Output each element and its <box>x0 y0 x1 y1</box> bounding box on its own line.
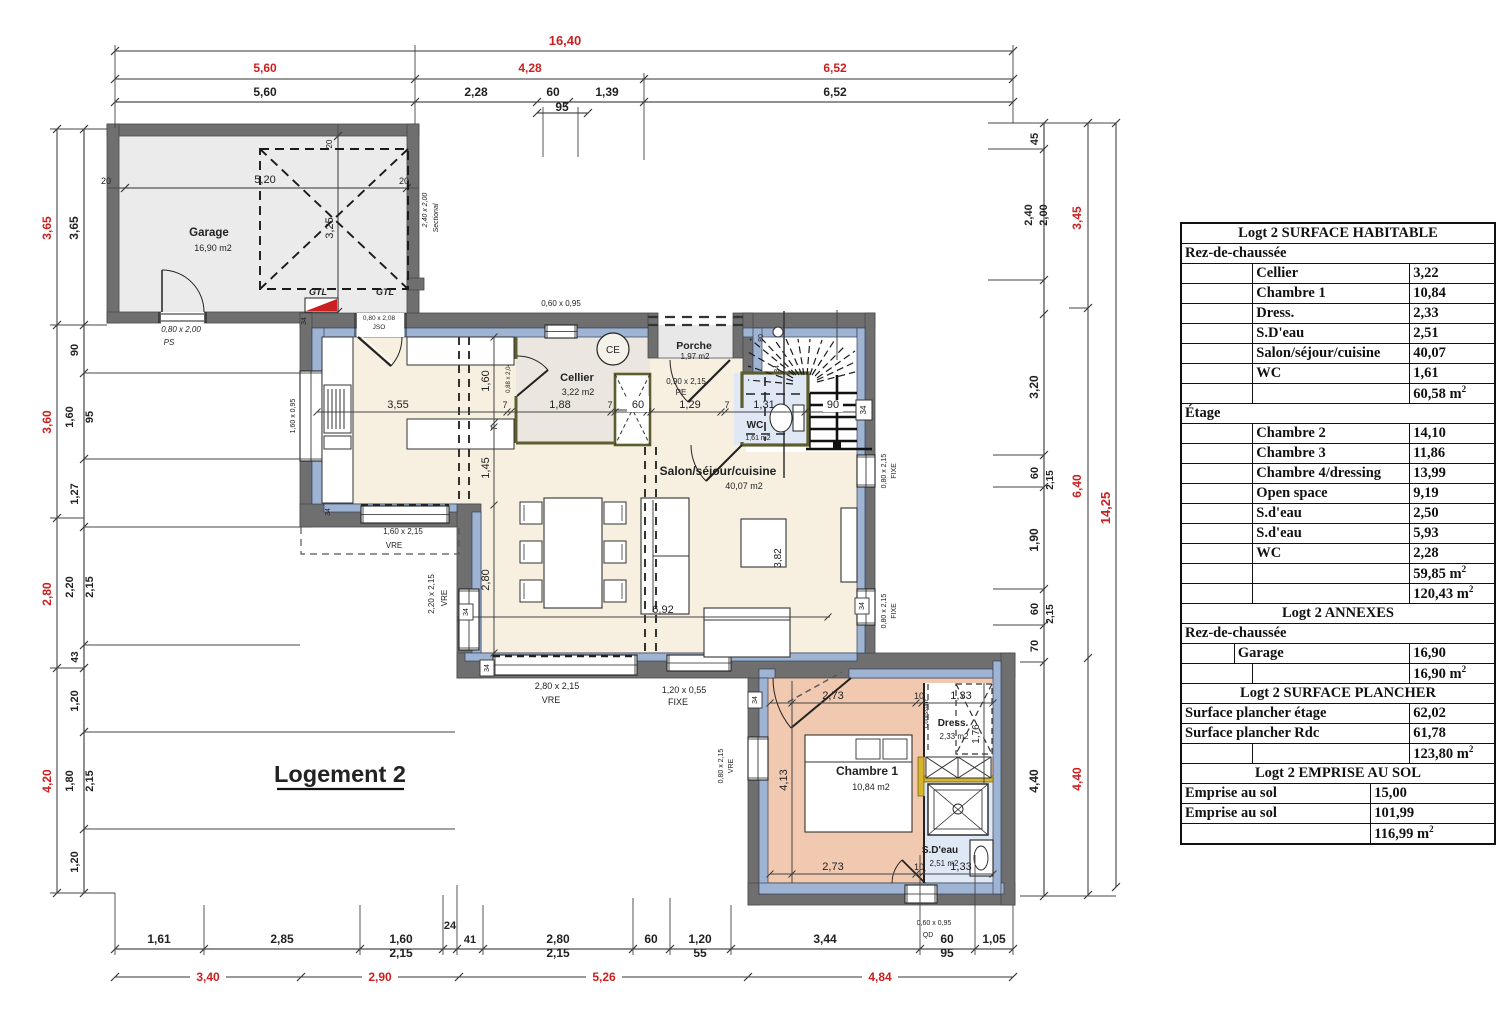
svg-text:1,88: 1,88 <box>549 399 570 411</box>
svg-text:0,90 x 2,15: 0,90 x 2,15 <box>666 377 706 386</box>
svg-text:3,65: 3,65 <box>67 216 81 240</box>
svg-text:16,40: 16,40 <box>549 33 582 48</box>
svg-text:1,60 x 2,15: 1,60 x 2,15 <box>383 527 423 536</box>
svg-text:40,07 m2: 40,07 m2 <box>725 481 763 491</box>
svg-text:20: 20 <box>325 139 334 148</box>
svg-text:5,60: 5,60 <box>253 85 277 99</box>
svg-text:80: 80 <box>758 334 765 342</box>
svg-text:7: 7 <box>490 425 499 430</box>
svg-text:1,33: 1,33 <box>950 690 971 702</box>
svg-text:2,80 x 2,15: 2,80 x 2,15 <box>535 681 580 691</box>
svg-text:6,92: 6,92 <box>652 604 673 616</box>
svg-text:2,90: 2,90 <box>368 970 392 984</box>
svg-text:3,40: 3,40 <box>196 970 220 984</box>
svg-text:2,00: 2,00 <box>1038 204 1050 225</box>
svg-text:0,60 x 0,95: 0,60 x 0,95 <box>541 299 581 308</box>
svg-text:7: 7 <box>724 400 729 410</box>
svg-text:34: 34 <box>859 405 868 414</box>
svg-text:90: 90 <box>827 399 839 411</box>
svg-text:FIXE: FIXE <box>891 463 898 479</box>
svg-text:CE: CE <box>606 345 620 356</box>
svg-text:1,29: 1,29 <box>679 399 700 411</box>
svg-text:60: 60 <box>1029 467 1041 479</box>
svg-text:0,88 x 2,04: 0,88 x 2,04 <box>506 362 512 392</box>
svg-text:Garage: Garage <box>189 227 229 239</box>
svg-text:1,60: 1,60 <box>389 932 413 946</box>
svg-text:4,20: 4,20 <box>40 769 54 793</box>
svg-text:VRE: VRE <box>386 541 402 550</box>
svg-text:55: 55 <box>693 946 707 960</box>
svg-text:3,55: 3,55 <box>387 399 408 411</box>
svg-text:20: 20 <box>101 176 111 186</box>
svg-text:90: 90 <box>69 344 81 356</box>
svg-text:3,25: 3,25 <box>324 217 336 238</box>
svg-text:Chambre 1: Chambre 1 <box>836 764 898 778</box>
svg-text:14,25: 14,25 <box>1098 492 1113 525</box>
svg-text:24: 24 <box>444 920 457 932</box>
svg-text:60: 60 <box>632 399 644 411</box>
svg-text:WC: WC <box>747 420 764 431</box>
svg-text:34: 34 <box>752 696 759 704</box>
svg-text:2,40 x 2,00: 2,40 x 2,00 <box>422 193 429 229</box>
svg-text:0,80 x 2,15: 0,80 x 2,15 <box>881 594 888 629</box>
svg-text:60: 60 <box>940 932 954 946</box>
svg-text:0,80 x 2,00: 0,80 x 2,00 <box>161 325 201 334</box>
svg-text:3,45: 3,45 <box>1070 206 1084 230</box>
svg-text:Logement 2: Logement 2 <box>274 761 406 787</box>
svg-text:3,20: 3,20 <box>1027 375 1041 399</box>
svg-text:4,40: 4,40 <box>1070 767 1084 791</box>
svg-text:2,20 x 2,15: 2,20 x 2,15 <box>427 574 436 614</box>
svg-text:4,84: 4,84 <box>868 970 892 984</box>
svg-text:60: 60 <box>644 932 658 946</box>
svg-text:4,13: 4,13 <box>778 769 790 790</box>
svg-text:2,20: 2,20 <box>64 576 76 597</box>
svg-text:GTL: GTL <box>309 287 327 297</box>
svg-text:Sectional: Sectional <box>433 203 440 232</box>
svg-text:VRE: VRE <box>542 695 561 705</box>
svg-text:95: 95 <box>84 411 96 423</box>
svg-text:1,60: 1,60 <box>480 370 492 391</box>
svg-text:1,61 m2: 1,61 m2 <box>745 435 770 442</box>
svg-text:1,80: 1,80 <box>64 770 76 791</box>
svg-text:2,73: 2,73 <box>822 690 843 702</box>
svg-text:10: 10 <box>914 862 924 872</box>
svg-text:2,15: 2,15 <box>1045 604 1056 624</box>
svg-text:S.D'eau: S.D'eau <box>922 845 958 856</box>
svg-text:1,60 x 0,95: 1,60 x 0,95 <box>290 399 297 434</box>
svg-text:1,90: 1,90 <box>1027 528 1041 552</box>
svg-text:34: 34 <box>301 317 308 325</box>
svg-text:1,20: 1,20 <box>69 690 81 711</box>
svg-text:GTL: GTL <box>376 287 394 297</box>
svg-text:1,33: 1,33 <box>950 861 971 873</box>
svg-text:70: 70 <box>1029 640 1041 652</box>
svg-text:1,45: 1,45 <box>480 457 492 478</box>
svg-text:43: 43 <box>70 651 81 663</box>
svg-text:2,40: 2,40 <box>1023 204 1035 225</box>
svg-text:6,40: 6,40 <box>1070 474 1084 498</box>
svg-text:Cellier: Cellier <box>560 372 594 384</box>
svg-text:FIXE: FIXE <box>668 697 688 707</box>
svg-text:3,60: 3,60 <box>40 410 54 434</box>
svg-text:3,44: 3,44 <box>813 932 837 946</box>
svg-text:3,65: 3,65 <box>40 216 54 240</box>
svg-text:0,80 x 2,15: 0,80 x 2,15 <box>881 454 888 489</box>
svg-text:1,05: 1,05 <box>982 932 1006 946</box>
svg-text:QD: QD <box>923 932 934 939</box>
svg-text:7: 7 <box>607 400 612 410</box>
svg-text:5,60: 5,60 <box>253 61 277 75</box>
svg-text:60: 60 <box>1029 603 1041 615</box>
svg-text:45: 45 <box>1029 133 1041 145</box>
svg-text:16,90 m2: 16,90 m2 <box>194 243 232 253</box>
svg-text:10,84 m2: 10,84 m2 <box>852 782 890 792</box>
svg-text:34: 34 <box>484 664 491 672</box>
svg-text:2,15: 2,15 <box>84 770 96 791</box>
svg-text:95: 95 <box>555 100 569 114</box>
svg-text:2,80: 2,80 <box>480 569 492 590</box>
svg-text:PE: PE <box>676 388 687 397</box>
svg-text:1,76: 1,76 <box>971 724 982 744</box>
svg-text:10: 10 <box>914 691 924 701</box>
svg-text:34: 34 <box>463 608 470 616</box>
svg-text:Salon/séjour/cuisine: Salon/séjour/cuisine <box>660 464 777 478</box>
svg-text:2,85: 2,85 <box>270 932 294 946</box>
svg-text:2,80: 2,80 <box>40 582 54 606</box>
svg-text:7: 7 <box>502 400 507 410</box>
svg-text:0,80 x 2,15: 0,80 x 2,15 <box>718 749 725 784</box>
svg-text:3,22 m2: 3,22 m2 <box>562 387 595 397</box>
svg-text:5,20: 5,20 <box>254 174 275 186</box>
svg-text:PS: PS <box>164 338 175 347</box>
svg-text:0,60 x 0,95: 0,60 x 0,95 <box>917 920 952 927</box>
svg-text:2,28: 2,28 <box>464 85 488 99</box>
svg-text:VRE: VRE <box>728 758 735 773</box>
svg-text:3,82: 3,82 <box>773 548 784 568</box>
svg-text:95: 95 <box>940 946 954 960</box>
svg-text:1,20 x 0,55: 1,20 x 0,55 <box>662 685 707 695</box>
svg-text:4,28: 4,28 <box>518 61 542 75</box>
svg-text:2,33 m2: 2,33 m2 <box>940 732 969 741</box>
svg-text:34: 34 <box>774 365 781 373</box>
svg-text:5,26: 5,26 <box>592 970 616 984</box>
svg-text:41: 41 <box>464 934 476 946</box>
svg-text:2,15: 2,15 <box>84 576 96 597</box>
svg-text:34: 34 <box>325 508 332 516</box>
svg-text:1,60: 1,60 <box>64 406 76 427</box>
svg-text:1,61: 1,61 <box>147 932 171 946</box>
svg-text:JSO: JSO <box>373 324 386 331</box>
svg-text:2,15: 2,15 <box>546 946 570 960</box>
svg-text:4,40: 4,40 <box>1027 769 1041 793</box>
svg-text:FIXE: FIXE <box>891 603 898 619</box>
svg-text:1,31: 1,31 <box>753 399 774 411</box>
svg-text:34: 34 <box>859 602 866 610</box>
svg-text:Dress.: Dress. <box>938 718 969 729</box>
svg-text:1,97 m2: 1,97 m2 <box>681 352 710 361</box>
svg-text:1,20: 1,20 <box>688 932 712 946</box>
svg-text:1,27: 1,27 <box>69 483 81 504</box>
svg-text:6,52: 6,52 <box>823 61 847 75</box>
svg-text:VRE: VRE <box>440 590 449 606</box>
svg-text:2,15: 2,15 <box>389 946 413 960</box>
svg-text:1,20: 1,20 <box>69 851 81 872</box>
svg-text:2,15: 2,15 <box>1045 470 1056 490</box>
svg-text:Coulissant: Coulissant <box>924 700 930 728</box>
svg-text:2,73: 2,73 <box>822 861 843 873</box>
svg-text:6,52: 6,52 <box>823 85 847 99</box>
svg-text:0,80 x 2,08: 0,80 x 2,08 <box>363 315 396 322</box>
svg-text:1,39: 1,39 <box>595 85 619 99</box>
svg-text:2,80: 2,80 <box>546 932 570 946</box>
svg-text:60: 60 <box>546 85 560 99</box>
svg-text:Porche: Porche <box>676 340 712 352</box>
